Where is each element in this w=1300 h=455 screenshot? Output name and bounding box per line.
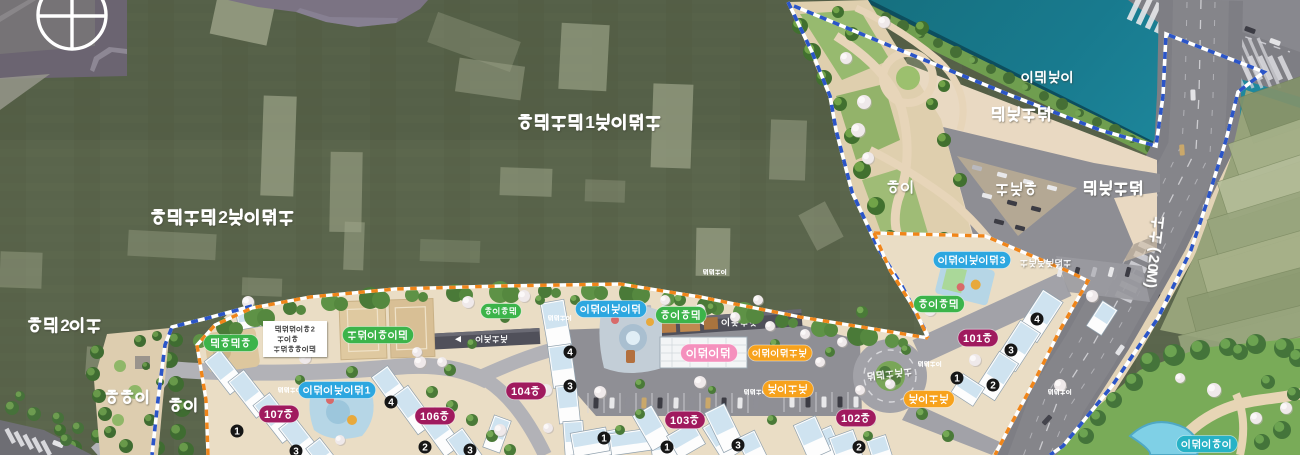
svg-text:2: 2 (311, 325, 315, 334)
svg-text:3: 3 (735, 441, 741, 452)
svg-text:2: 2 (854, 413, 860, 425)
svg-text:1: 1 (511, 386, 517, 398)
svg-text:4: 4 (1034, 315, 1040, 326)
svg-text:0: 0 (848, 413, 854, 425)
svg-text:2: 2 (60, 316, 69, 335)
svg-text:0: 0 (518, 386, 524, 398)
svg-text:1: 1 (841, 413, 847, 425)
svg-text:1: 1 (601, 434, 607, 445)
svg-text:2: 2 (422, 443, 428, 454)
svg-text:2: 2 (856, 443, 862, 454)
svg-text:1: 1 (976, 333, 982, 345)
svg-text:1: 1 (670, 415, 676, 427)
svg-text:4: 4 (567, 348, 573, 359)
svg-text:2: 2 (990, 381, 996, 392)
svg-text:3: 3 (467, 446, 473, 455)
svg-text:1: 1 (585, 112, 595, 132)
svg-text:0: 0 (271, 409, 277, 421)
svg-text:4: 4 (524, 386, 531, 398)
svg-text:1: 1 (664, 443, 670, 454)
svg-text:0: 0 (677, 415, 683, 427)
svg-text:1: 1 (264, 409, 270, 421)
svg-text:1: 1 (365, 385, 371, 397)
svg-text:1: 1 (234, 427, 240, 438)
svg-text:3: 3 (1000, 255, 1006, 267)
svg-text:3: 3 (293, 447, 299, 455)
svg-text:0: 0 (427, 411, 433, 423)
svg-text:1: 1 (954, 374, 960, 385)
svg-text:6: 6 (433, 411, 439, 423)
svg-text:3: 3 (567, 382, 573, 393)
svg-text:7: 7 (277, 409, 283, 421)
svg-text:1: 1 (963, 333, 969, 345)
svg-text:1: 1 (420, 411, 426, 423)
svg-text:3: 3 (1008, 346, 1014, 357)
svg-text:3: 3 (683, 415, 689, 427)
svg-text:2: 2 (218, 207, 228, 227)
svg-text:0: 0 (970, 333, 976, 345)
svg-text:4: 4 (388, 398, 394, 409)
